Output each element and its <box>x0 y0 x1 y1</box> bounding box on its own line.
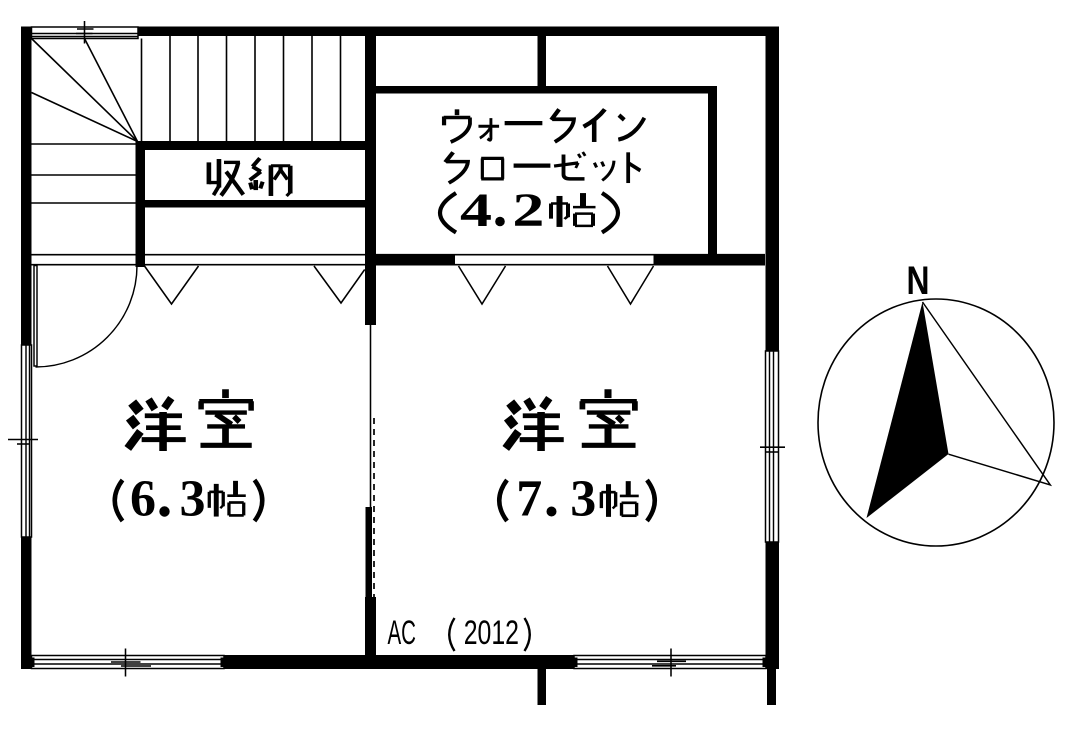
svg-text:N: N <box>907 259 930 303</box>
svg-text:4: 4 <box>460 184 492 237</box>
svg-text:6: 6 <box>130 471 156 528</box>
svg-text:3: 3 <box>180 471 206 528</box>
svg-text:2: 2 <box>512 184 544 237</box>
svg-text:AC: AC <box>388 614 417 652</box>
svg-text:2012: 2012 <box>464 614 519 652</box>
svg-text:7: 7 <box>516 471 542 528</box>
svg-text:3: 3 <box>570 471 596 528</box>
